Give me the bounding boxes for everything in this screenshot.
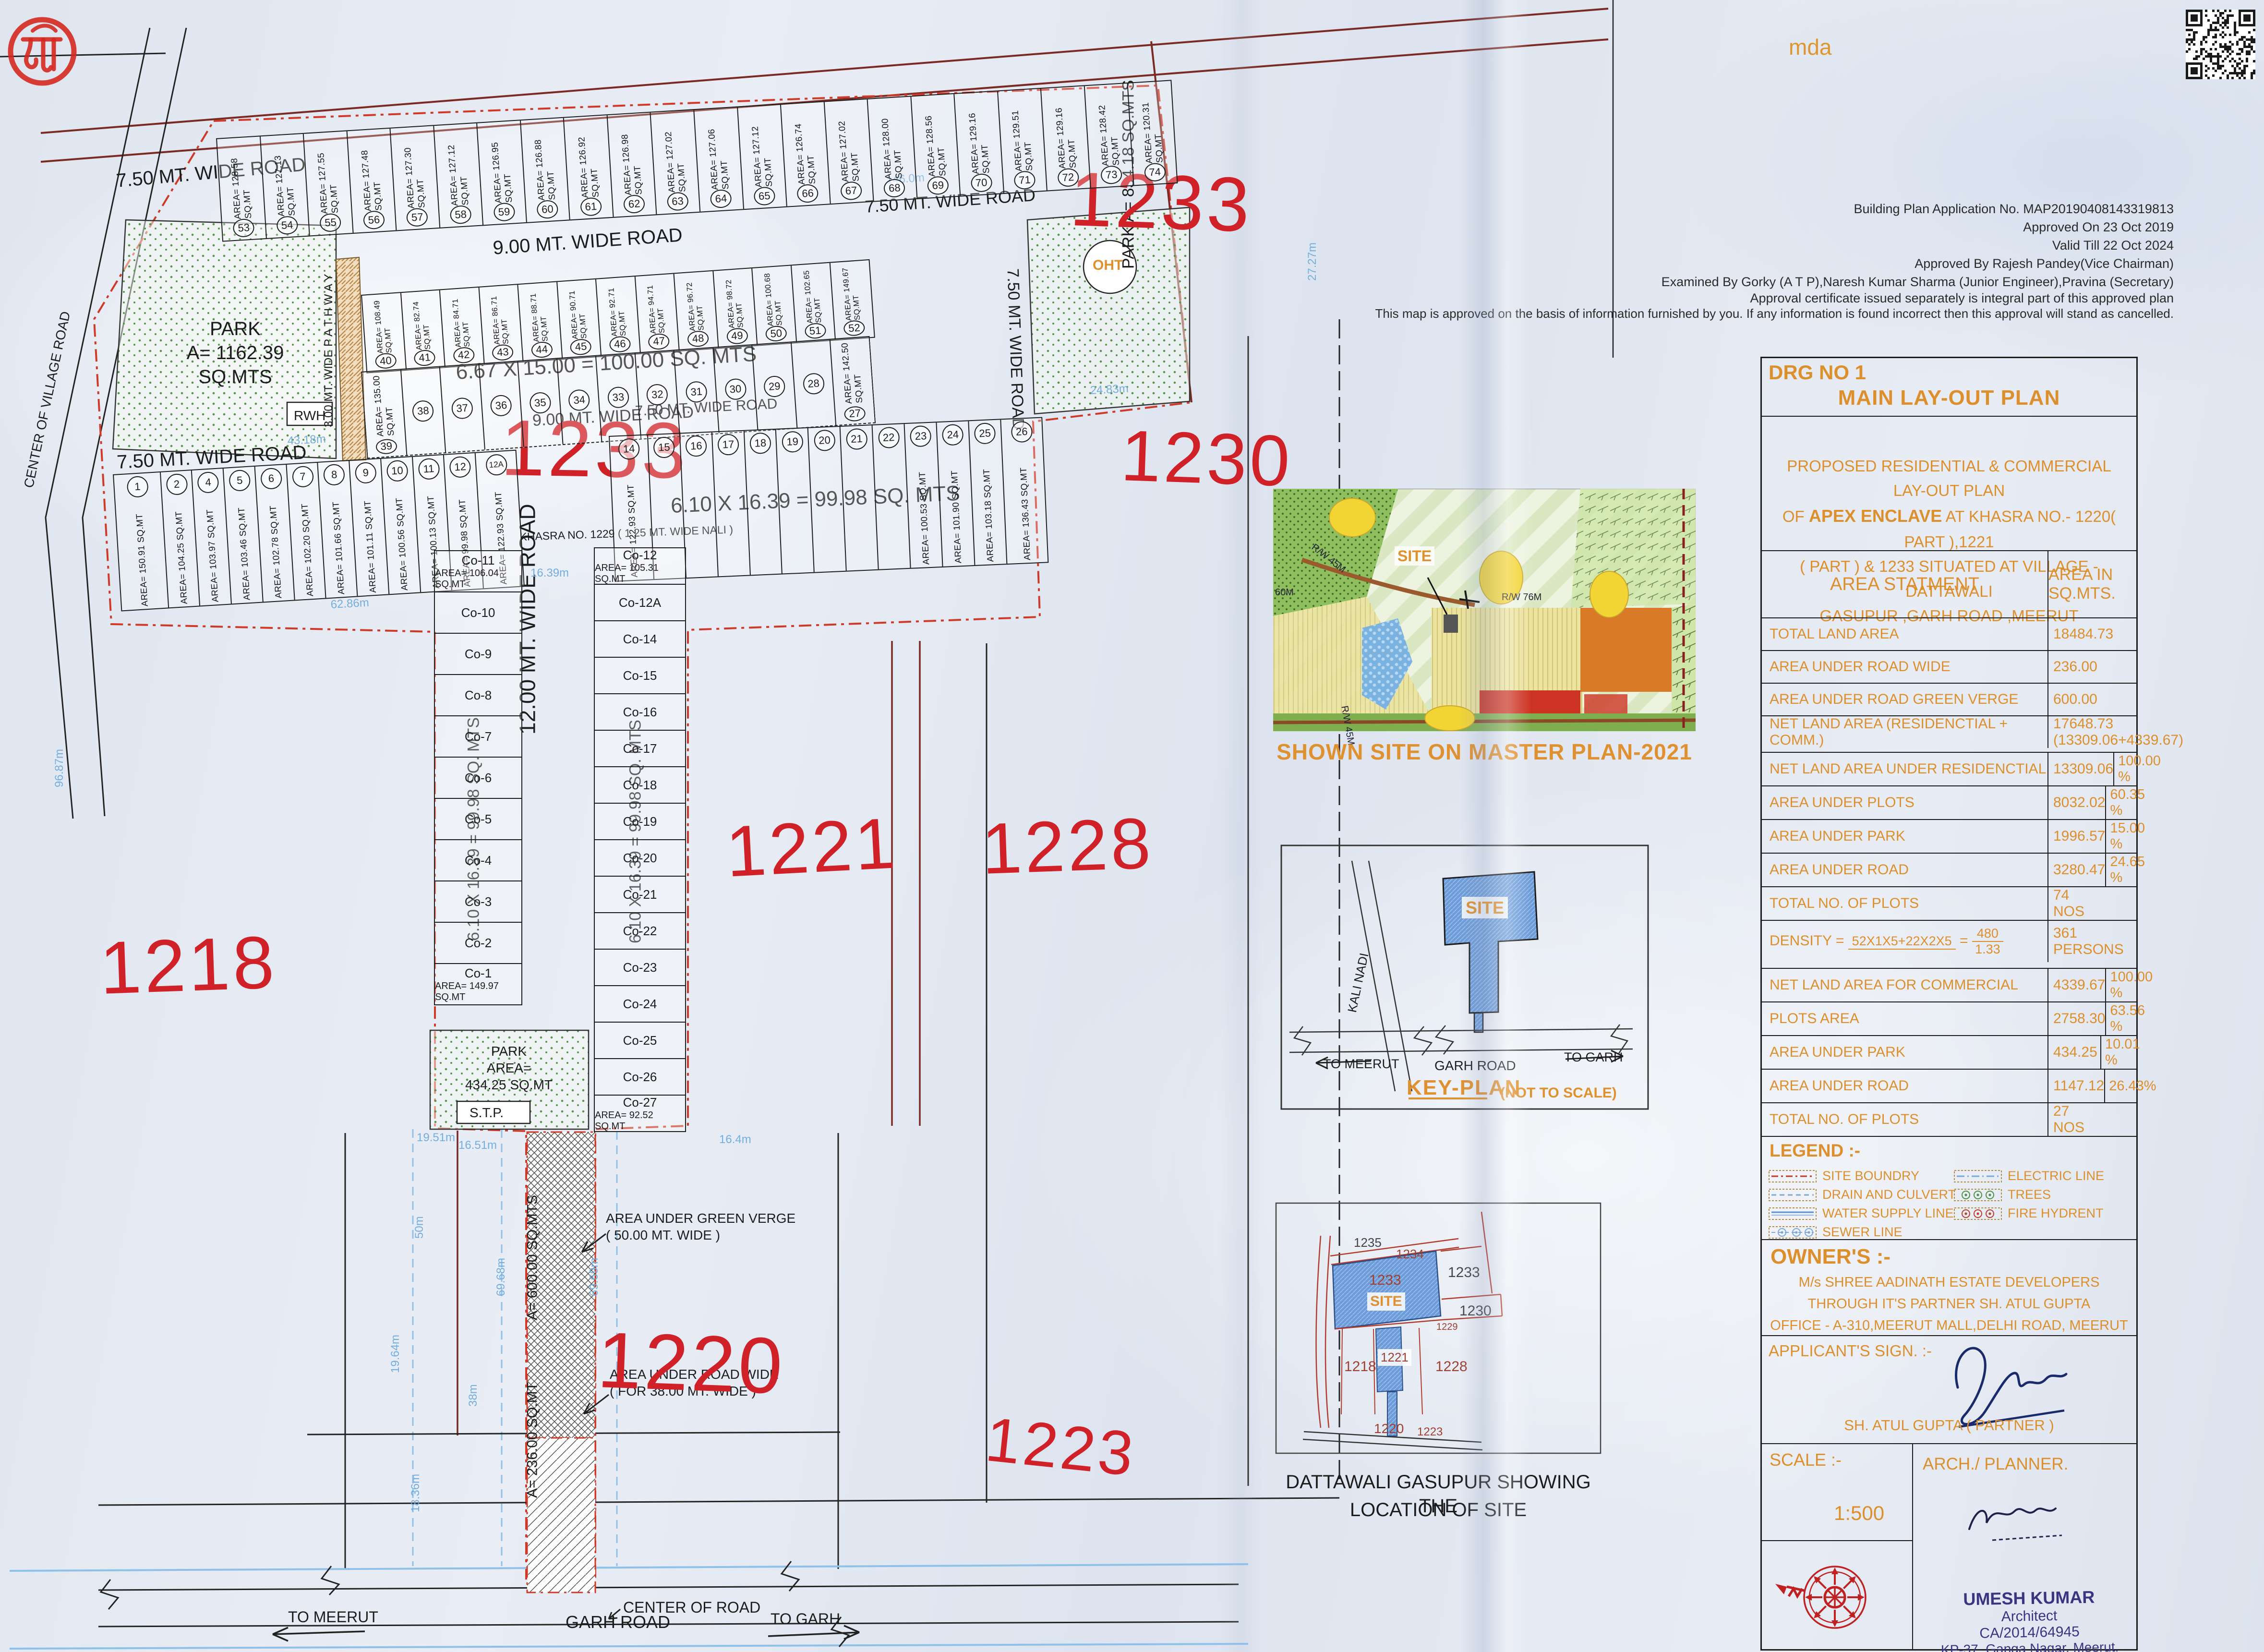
commercial-value: 434.25: [2047, 1036, 2100, 1069]
plot-label-Co-8: Co-8: [465, 688, 492, 703]
plot-Co-9: Co-9: [434, 634, 522, 675]
commercial-column-left: Co-11AREA= 106.04 SQ.MTCo-10Co-9Co-8Co-7…: [434, 550, 522, 1005]
plot-number-25: 25: [974, 422, 996, 445]
area-table-row-0: TOTAL LAND AREA18484.73: [1762, 617, 2136, 650]
legend-item-electric: ELECTRIC LINE: [1954, 1169, 2104, 1183]
plot-number-61: 61: [580, 197, 602, 216]
plot-61: AREA= 126.92 SQ.MT61: [564, 115, 614, 219]
area-table-row-3: NET LAND AREA (RESIDENCTIAL + COMM.)1764…: [1762, 715, 2136, 748]
residential-value: 13309.06: [2047, 753, 2113, 785]
plot-number-65: 65: [753, 186, 775, 205]
plan-label-to_garh: TO GARH: [771, 1609, 840, 1628]
shri-seal-stamp-icon: [4, 11, 85, 92]
plot-label-Co-11: Co-11: [462, 553, 495, 568]
dimension-d10: 50m: [413, 1216, 426, 1239]
plot-number-1: 1: [126, 476, 149, 498]
plot-Co-23: Co-23: [594, 950, 686, 986]
approval-line-0: Building Plan Application No. MAP2019040…: [1854, 202, 2174, 217]
owner-line-2: OFFICE - A-310,MEERUT MALL,DELHI ROAD, M…: [1762, 1315, 2136, 1337]
plot-area-50: AREA= 100.68 SQ.MT: [763, 269, 784, 326]
plot-number-5: 5: [229, 470, 251, 492]
legend-label-drain: DRAIN AND CULVERT: [1822, 1187, 1956, 1202]
plot-area-39: AREA= 135.00 SQ.MT: [371, 373, 396, 437]
legend-symbol-site-icon: [1769, 1169, 1817, 1183]
owners-title: OWNER'S :-: [1770, 1245, 1891, 1269]
plot-number-39: 39: [375, 438, 397, 455]
plot-number-9: 9: [354, 462, 377, 484]
plot-34: 34: [557, 356, 602, 444]
plot-area-55: AREA= 127.55 SQ.MT: [314, 134, 340, 215]
plot-29: 29: [752, 342, 797, 430]
area-table-label: AREA UNDER ROAD WIDE: [1762, 659, 2047, 675]
dimension-d7: 16.4m: [719, 1133, 751, 1146]
khasra-number-1221: 1221: [724, 801, 900, 893]
plan-label-to_meerut: TO MEERUT: [288, 1607, 378, 1627]
plot-label-Co-7: Co-7: [465, 729, 492, 744]
khasra-number-1220: 1220: [596, 1314, 786, 1412]
plot-number-30: 30: [724, 378, 747, 400]
plot-48: AREA= 96.72 SQ.MT48: [674, 271, 719, 350]
location-parcel-lp1218: 1218: [1344, 1358, 1376, 1376]
plan-label-park1: PARK A= 1162.39 SQ.MTS: [173, 317, 298, 389]
location-parcel-lp1233s: 1233: [1369, 1271, 1401, 1290]
commercial-row-4: TOTAL NO. OF PLOTS27 NOS: [1762, 1102, 2136, 1136]
area-units-header: AREA IN SQ.MTS.: [2047, 551, 2136, 617]
plot-35: 35: [518, 359, 563, 446]
plot-68: AREA= 128.00 SQ.MT68: [868, 96, 917, 201]
drg-no: DRG NO 1: [1769, 361, 1866, 384]
plot-26: 26AREA= 136.43 SQ.MT: [1001, 418, 1048, 564]
dimension-d8: 69.68m: [494, 1258, 508, 1296]
residential-pct: 100.00 %: [2113, 753, 2161, 785]
location-plan-site-label: SITE: [1367, 1292, 1405, 1311]
plot-area-62: AREA= 126.98 SQ.MT: [618, 116, 644, 196]
plot-number-55: 55: [319, 213, 341, 232]
dimension-d3: 96.87m: [53, 749, 66, 787]
commercial-value: 2758.30: [2047, 1002, 2105, 1035]
location-parcel-lp1221: 1221: [1378, 1349, 1411, 1366]
plot-area-73: AREA= 128.42 SQ.MT: [1096, 86, 1121, 167]
plot-area-1: AREA= 150.91 SQ.MT: [134, 513, 150, 607]
plot-number-73: 73: [1100, 165, 1122, 184]
plan-label-center_rd: CENTER OF ROAD: [623, 1598, 760, 1617]
plot-27: AREA= 142.50 SQ.MT27: [831, 337, 875, 425]
location-plan-caption-2: LOCATION OF SITE: [1275, 1498, 1602, 1522]
location-parcel-lp1229: 1229: [1436, 1321, 1458, 1333]
plot-67: AREA= 127.02 SQ.MT67: [824, 99, 874, 204]
plot-label-Co-15: Co-15: [623, 668, 657, 683]
plot-73: AREA= 128.42 SQ.MT73: [1085, 84, 1134, 188]
area-statement-header: AREA STATMENT: [1762, 574, 2047, 595]
plot-area-Co-11: AREA= 106.04 SQ.MT: [435, 568, 521, 590]
plot-Co-4: Co-4: [434, 840, 522, 881]
plot-label-Co-16: Co-16: [623, 705, 657, 720]
plot-area-41: AREA= 82.74 SQ.MT: [412, 293, 433, 350]
plot-number-47: 47: [648, 333, 670, 350]
plot-area-46: AREA= 92.71 SQ.MT: [607, 280, 628, 337]
plot-label-Co-5: Co-5: [465, 812, 492, 827]
approval-line-1: Approved On 23 Oct 2019: [2023, 220, 2174, 235]
commercial-pct: 26.43%: [2104, 1070, 2156, 1102]
dimension-d13: 16.39m: [530, 567, 569, 580]
plot-66: AREA= 126.74 SQ.MT66: [781, 102, 831, 206]
plot-number-20: 20: [814, 429, 836, 451]
commercial-pct: 63.56 %: [2105, 1002, 2145, 1035]
location-parcel-lp1235: 1235: [1354, 1235, 1382, 1251]
scanned-layout-plan-document: { "header": { "agency": "mda", "approval…: [0, 0, 2264, 1652]
plot-number-29: 29: [763, 375, 786, 398]
plot-Co-26: Co-26: [594, 1059, 686, 1096]
plan-label-verge_note: AREA UNDER GREEN VERGE ( 50.00 MT. WIDE …: [606, 1210, 795, 1243]
plot-area-45: AREA= 90.71 SQ.MT: [568, 282, 589, 339]
plot-74: AREA= 120.31 SQ.MT74: [1128, 81, 1177, 185]
scale-label: SCALE :-: [1770, 1450, 1842, 1470]
plot-45: AREA= 90.71 SQ.MT45: [557, 279, 602, 359]
plot-Co-19: Co-19: [594, 804, 686, 840]
plan-label-park3: PARK AREA= 434.25 SQ.MT: [451, 1043, 566, 1093]
area-table-label: TOTAL LAND AREA: [1762, 626, 2047, 642]
residential-row-2: AREA UNDER PARK1996.5715.00 %: [1762, 819, 2136, 853]
plot-area-70: AREA= 129.16 SQ.MT: [965, 95, 991, 175]
commercial-row-2: AREA UNDER PARK434.2510.01 %: [1762, 1035, 2136, 1069]
plan-label-stp: S.T.P.: [470, 1104, 504, 1121]
plot-42: AREA= 84.71 SQ.MT42: [440, 288, 484, 367]
plot-label-Co-18: Co-18: [623, 778, 657, 793]
legend-item-sewer: SEWER LINE: [1769, 1225, 1956, 1240]
plot-label-Co-27: Co-27: [623, 1095, 657, 1110]
plot-label-Co-14: Co-14: [623, 632, 657, 647]
plot-number-53: 53: [233, 218, 255, 238]
commercial-value: 27 NOS: [2047, 1103, 2100, 1136]
plot-number-11: 11: [418, 458, 440, 481]
legend-symbol-drain-icon: [1769, 1188, 1817, 1202]
commercial-column-right: Co-12AREA= 105.31 SQ.MTCo-12ACo-14Co-15C…: [594, 547, 686, 1132]
plot-number-44: 44: [531, 341, 553, 358]
plot-Co-14: Co-14: [594, 621, 686, 658]
plot-number-50: 50: [765, 325, 787, 342]
residential-label: AREA UNDER PLOTS: [1762, 795, 2047, 811]
legend-symbol-sewer-icon: [1769, 1225, 1817, 1240]
plot-49: AREA= 98.72 SQ.MT49: [713, 268, 758, 348]
plot-63: AREA= 127.02 SQ.MT63: [651, 110, 700, 214]
plot-53: AREA= 128.58 SQ.MT53: [217, 136, 266, 241]
architect-stamp: UMESH KUMAR Architect CA/2014/64945 KP-3…: [1922, 1586, 2137, 1652]
location-parcel-lp1233r: 1233: [1448, 1264, 1480, 1282]
location-parcel-lp1223: 1223: [1417, 1425, 1443, 1439]
key-plan-label-togarh: TO GARH: [1564, 1049, 1623, 1066]
density-value: 361 PERSONS: [2047, 921, 2136, 962]
legend-symbol-water-icon: [1769, 1206, 1817, 1221]
plot-57: AREA= 127.30 SQ.MT57: [391, 126, 440, 230]
residential-row-3: AREA UNDER ROAD3280.4724.65 %: [1762, 853, 2136, 886]
commercial-label: AREA UNDER ROAD: [1762, 1078, 2047, 1094]
commercial-pct: 10.01 %: [2100, 1036, 2140, 1069]
plot-label-Co-24: Co-24: [623, 997, 657, 1012]
plot-47: AREA= 94.71 SQ.MT47: [635, 274, 679, 353]
plot-area-7: AREA= 102.20 SQ.MT: [299, 503, 315, 597]
plot-label-Co-26: Co-26: [623, 1070, 657, 1085]
plot-number-63: 63: [666, 192, 688, 211]
plot-Co-10: Co-10: [434, 592, 522, 634]
plot-38: 38: [401, 367, 446, 455]
plot-number-48: 48: [687, 330, 709, 347]
plot-area-74: AREA= 120.31 SQ.MT: [1139, 84, 1165, 164]
legend-title: LEGEND :-: [1770, 1141, 1860, 1161]
area-table-label: AREA UNDER ROAD GREEN VERGE: [1762, 691, 2047, 708]
plot-number-18: 18: [749, 432, 771, 454]
plot-number-23: 23: [910, 425, 932, 447]
scale-value: 1:500: [1834, 1502, 1884, 1525]
residential-pct: 24.65 %: [2105, 854, 2145, 886]
legend-left-column: SITE BOUNDRYDRAIN AND CULVERTWATER SUPPL…: [1769, 1165, 1956, 1243]
legend-label-trees: TREES: [2008, 1187, 2051, 1202]
plot-71: AREA= 129.51 SQ.MT71: [998, 89, 1048, 193]
master-plan-road-label-m60: 60M: [1275, 587, 1294, 599]
sheet-title: MAIN LAY-OUT PLAN: [1762, 386, 2136, 410]
residential-label: NET LAND AREA UNDER RESIDENCTIAL: [1762, 761, 2047, 777]
plot-number-38: 38: [412, 400, 434, 422]
plot-69: AREA= 128.56 SQ.MT69: [911, 94, 961, 198]
plot-number-72: 72: [1057, 168, 1079, 187]
commercial-label: TOTAL NO. OF PLOTS: [1762, 1111, 2047, 1128]
plot-number-7: 7: [291, 466, 314, 488]
density-formula: DENSITY = 52X1X5+22X2X5 = 4801.33: [1770, 933, 2003, 949]
plot-area-6: AREA= 102.78 SQ.MT: [267, 505, 284, 599]
plot-Co-27: Co-27AREA= 92.52 SQ.MT: [594, 1096, 686, 1132]
commercial-row-1: PLOTS AREA2758.3063.56 %: [1762, 1001, 2136, 1035]
plot-area-Co-12: AREA= 105.31 SQ.MT: [595, 563, 685, 585]
plot-Co-6: Co-6: [434, 758, 522, 799]
commercial-row-3: AREA UNDER ROAD1147.1226.43%: [1762, 1069, 2136, 1102]
plot-label-Co-6: Co-6: [465, 771, 492, 785]
plot-Co-21: Co-21: [594, 877, 686, 913]
plot-number-34: 34: [568, 389, 590, 411]
plot-area-4: AREA= 103.97 SQ.MT: [205, 509, 221, 603]
commercial-label: PLOTS AREA: [1762, 1011, 2047, 1027]
location-parcel-lp1234: 1234: [1396, 1246, 1424, 1262]
plot-number-2: 2: [166, 473, 188, 496]
plot-59: AREA= 126.95 SQ.MT59: [477, 121, 527, 225]
residential-row-1: AREA UNDER PLOTS8032.0260.35 %: [1762, 785, 2136, 819]
plot-area-59: AREA= 126.95 SQ.MT: [488, 124, 514, 204]
legend-item-drain: DRAIN AND CULVERT: [1769, 1187, 1956, 1202]
plot-number-19: 19: [782, 431, 804, 453]
plot-Co-8: Co-8: [434, 675, 522, 716]
plot-55: AREA= 127.55 SQ.MT55: [304, 131, 353, 235]
owners-section: OWNER'S :- M/s SHREE AADINATH ESTATE DEV…: [1762, 1239, 2136, 1335]
plot-number-6: 6: [260, 468, 283, 490]
plot-65: AREA= 127.12 SQ.MT65: [738, 105, 787, 209]
legend-item-site: SITE BOUNDRY: [1769, 1169, 1956, 1183]
density-label: DENSITY = 52X1X5+22X2X5 = 4801.33: [1762, 926, 2047, 957]
plot-number-35: 35: [529, 392, 552, 414]
plot-label-Co-9: Co-9: [465, 647, 492, 662]
residential-value: 74 NOS: [2047, 887, 2100, 920]
plot-area-42: AREA= 84.71 SQ.MT: [451, 290, 472, 348]
plot-number-62: 62: [623, 194, 645, 214]
plot-number-16: 16: [685, 435, 707, 457]
plot-72: AREA= 129.16 SQ.MT72: [1041, 86, 1091, 190]
plot-number-8: 8: [323, 464, 346, 486]
plot-area-9: AREA= 101.11 SQ.MT: [362, 500, 378, 593]
location-parcel-lp1230: 1230: [1459, 1302, 1492, 1320]
dimension-d5: 27.27m: [1306, 242, 1319, 281]
qr-code: [2186, 10, 2258, 82]
plot-36: 36: [479, 362, 524, 449]
area-table-row-2: AREA UNDER ROAD GREEN VERGE600.00: [1762, 683, 2136, 715]
plot-41: AREA= 82.74 SQ.MT41: [401, 290, 445, 369]
residential-value: 8032.02: [2047, 786, 2105, 819]
plot-Co-7: Co-7: [434, 716, 522, 758]
plot-area-68: AREA= 128.00 SQ.MT: [879, 100, 904, 180]
plot-Co-25: Co-25: [594, 1023, 686, 1059]
legend-item-trees: TREES: [1954, 1187, 2104, 1202]
plot-label-Co-12A: Co-12A: [619, 595, 661, 610]
plot-label-Co-1: Co-1: [465, 966, 492, 981]
plot-number-68: 68: [883, 179, 905, 198]
plot-number-41: 41: [414, 349, 436, 366]
plot-number-52: 52: [843, 320, 865, 337]
area-table-value: 236.00: [2047, 651, 2136, 683]
plot-number-27: 27: [844, 406, 866, 422]
plan-label-pathway: 3.00 MT. WIDE P A T H W A Y: [322, 274, 336, 427]
approval-line-6: This map is approved on the basis of inf…: [1375, 306, 2174, 321]
plot-number-33: 33: [607, 386, 630, 409]
plot-1: 1AREA= 150.91 SQ.MT: [114, 472, 169, 610]
legend-section: LEGEND :- SITE BOUNDRYDRAIN AND CULVERTW…: [1762, 1136, 2136, 1239]
plot-area-60: AREA= 126.88 SQ.MT: [531, 121, 557, 201]
plot-28: 28: [792, 340, 837, 428]
dimension-d9: 69.69m: [588, 1258, 601, 1296]
plot-area-8: AREA= 101.66 SQ.MT: [331, 501, 347, 595]
plot-area-58: AREA= 127.12 SQ.MT: [445, 126, 471, 206]
plot-number-43: 43: [492, 344, 514, 361]
plot-number-42: 42: [453, 347, 475, 364]
density-row: DENSITY = 52X1X5+22X2X5 = 4801.33361 PER…: [1762, 920, 2136, 962]
legend-symbol-trees-icon: [1954, 1188, 2002, 1202]
area-table-value: 18484.73: [2047, 618, 2136, 650]
legend-label-sewer: SEWER LINE: [1822, 1225, 1903, 1240]
plan-label-verge_area: A= 600.00 SQ.MTS: [524, 1195, 542, 1320]
plot-64: AREA= 127.06 SQ.MT64: [694, 108, 744, 212]
plot-number-22: 22: [878, 427, 900, 449]
residential-label: TOTAL NO. OF PLOTS: [1762, 895, 2047, 912]
commercial-label: NET LAND AREA FOR COMMERCIAL: [1762, 977, 2047, 993]
plot-area-26: AREA= 136.43 SQ.MT: [1018, 467, 1033, 561]
plot-number-59: 59: [493, 202, 515, 221]
plot-Co-20: Co-20: [594, 840, 686, 877]
plot-label-Co-19: Co-19: [623, 814, 657, 829]
plot-number-21: 21: [845, 428, 867, 450]
master-plan-inset-map: [1273, 489, 1696, 731]
residential-row-0: NET LAND AREA UNDER RESIDENCTIAL13309.06…: [1762, 752, 2136, 785]
plot-number-60: 60: [536, 200, 558, 219]
area-table-value: 17648.73 (13309.06+4339.67): [2047, 716, 2183, 748]
plot-area-64: AREA= 127.06 SQ.MT: [705, 110, 731, 191]
plot-number-70: 70: [970, 173, 992, 193]
plot-label-Co-25: Co-25: [623, 1033, 657, 1048]
plot-label-Co-10: Co-10: [461, 605, 495, 620]
plot-label-Co-3: Co-3: [465, 894, 492, 909]
plot-number-36: 36: [490, 394, 513, 417]
area-table-label: NET LAND AREA (RESIDENCTIAL + COMM.): [1762, 716, 2047, 748]
dimension-d4: 43.18m: [287, 433, 326, 448]
plot-32: 32: [635, 350, 680, 438]
plot-44: AREA= 88.71 SQ.MT44: [518, 282, 562, 361]
plot-number-28: 28: [802, 373, 825, 395]
key-plan-subtitle: (NOT TO SCALE): [1500, 1084, 1617, 1102]
plot-number-46: 46: [609, 336, 631, 353]
plot-Co-12: Co-12AREA= 105.31 SQ.MT: [594, 547, 686, 585]
plot-area-40: AREA= 108.49 SQ.MT: [373, 296, 394, 354]
approval-line-4: Examined By Gorky (A T P),Naresh Kumar S…: [1662, 275, 2174, 289]
plot-area-25: AREA= 103.18 SQ.MT: [981, 469, 996, 562]
plot-number-54: 54: [276, 216, 298, 235]
plot-Co-16: Co-16: [594, 694, 686, 731]
plan-label-oht: OHT: [1093, 256, 1123, 275]
plot-number-12A: 12A: [485, 454, 508, 476]
plot-area-72: AREA= 129.16 SQ.MT: [1052, 89, 1078, 169]
residential-value: 3280.47: [2047, 854, 2105, 886]
khasra-number-1230: 1230: [1120, 414, 1294, 503]
architect-title: ARCH./ PLANNER.: [1923, 1455, 2068, 1474]
plot-52: AREA= 149.67 SQ.MT52: [831, 260, 874, 339]
plot-Co-11: Co-11AREA= 106.04 SQ.MT: [434, 550, 522, 592]
commercial-pct: 100.00 %: [2105, 969, 2153, 1001]
plot-43: AREA= 86.71 SQ.MT43: [479, 285, 523, 364]
plot-number-45: 45: [570, 338, 592, 356]
key-plan-label-tomeerut: TO MEERUT: [1323, 1056, 1399, 1073]
plot-number-40: 40: [374, 352, 397, 369]
plot-area-54: AREA= 127.13 SQ.MT: [271, 137, 297, 217]
plot-number-56: 56: [363, 210, 385, 229]
plot-58: AREA= 127.12 SQ.MT58: [434, 123, 483, 228]
dimension-d15: 19.64m: [389, 1335, 402, 1373]
dimension-d6: 19.51m: [417, 1131, 455, 1145]
dimension-d14: 24.83m: [1090, 382, 1129, 398]
plot-Co-2: Co-2: [434, 923, 522, 964]
project-subtitle: PROPOSED RESIDENTIAL & COMMERCIAL LAY-OU…: [1762, 416, 2136, 550]
plot-label-Co-4: Co-4: [465, 853, 492, 868]
plot-number-49: 49: [726, 327, 748, 345]
plot-area-66: AREA= 126.74 SQ.MT: [792, 105, 818, 185]
plot-area-Co-27: AREA= 92.52 SQ.MT: [595, 1110, 685, 1132]
plot-area-69: AREA= 128.56 SQ.MT: [922, 97, 948, 177]
legend-item-fire: FIRE HYDRENT: [1954, 1206, 2104, 1221]
plot-area-10: AREA= 100.56 SQ.MT: [394, 497, 410, 591]
plot-Co-18: Co-18: [594, 767, 686, 804]
plot-label-Co-23: Co-23: [623, 960, 657, 975]
area-table-header: AREA STATMENT AREA IN SQ.MTS.: [1762, 550, 2136, 617]
plot-50: AREA= 100.68 SQ.MT50: [752, 265, 796, 345]
plot-number-24: 24: [942, 424, 964, 446]
plot-number-71: 71: [1013, 170, 1036, 190]
plot-label-Co-22: Co-22: [623, 924, 657, 939]
legend-right-column: ELECTRIC LINETREESFIRE HYDRENT: [1954, 1165, 2104, 1225]
plot-40: AREA= 108.49 SQ.MT40: [362, 293, 406, 372]
plot-number-32: 32: [646, 384, 669, 406]
legend-symbol-fire-icon: [1954, 1206, 2002, 1221]
khasra-number-1228: 1228: [980, 802, 1155, 891]
plot-area-57: AREA= 127.30 SQ.MT: [401, 129, 427, 209]
project-name: APEX ENCLAVE: [1809, 506, 1942, 526]
plot-60: AREA= 126.88 SQ.MT60: [521, 118, 570, 222]
plot-number-31: 31: [685, 381, 708, 403]
plot-number-74: 74: [1144, 163, 1166, 182]
plot-area-5: AREA= 103.46 SQ.MT: [236, 507, 253, 601]
plot-number-64: 64: [710, 189, 732, 208]
residential-pct: [2100, 887, 2136, 920]
